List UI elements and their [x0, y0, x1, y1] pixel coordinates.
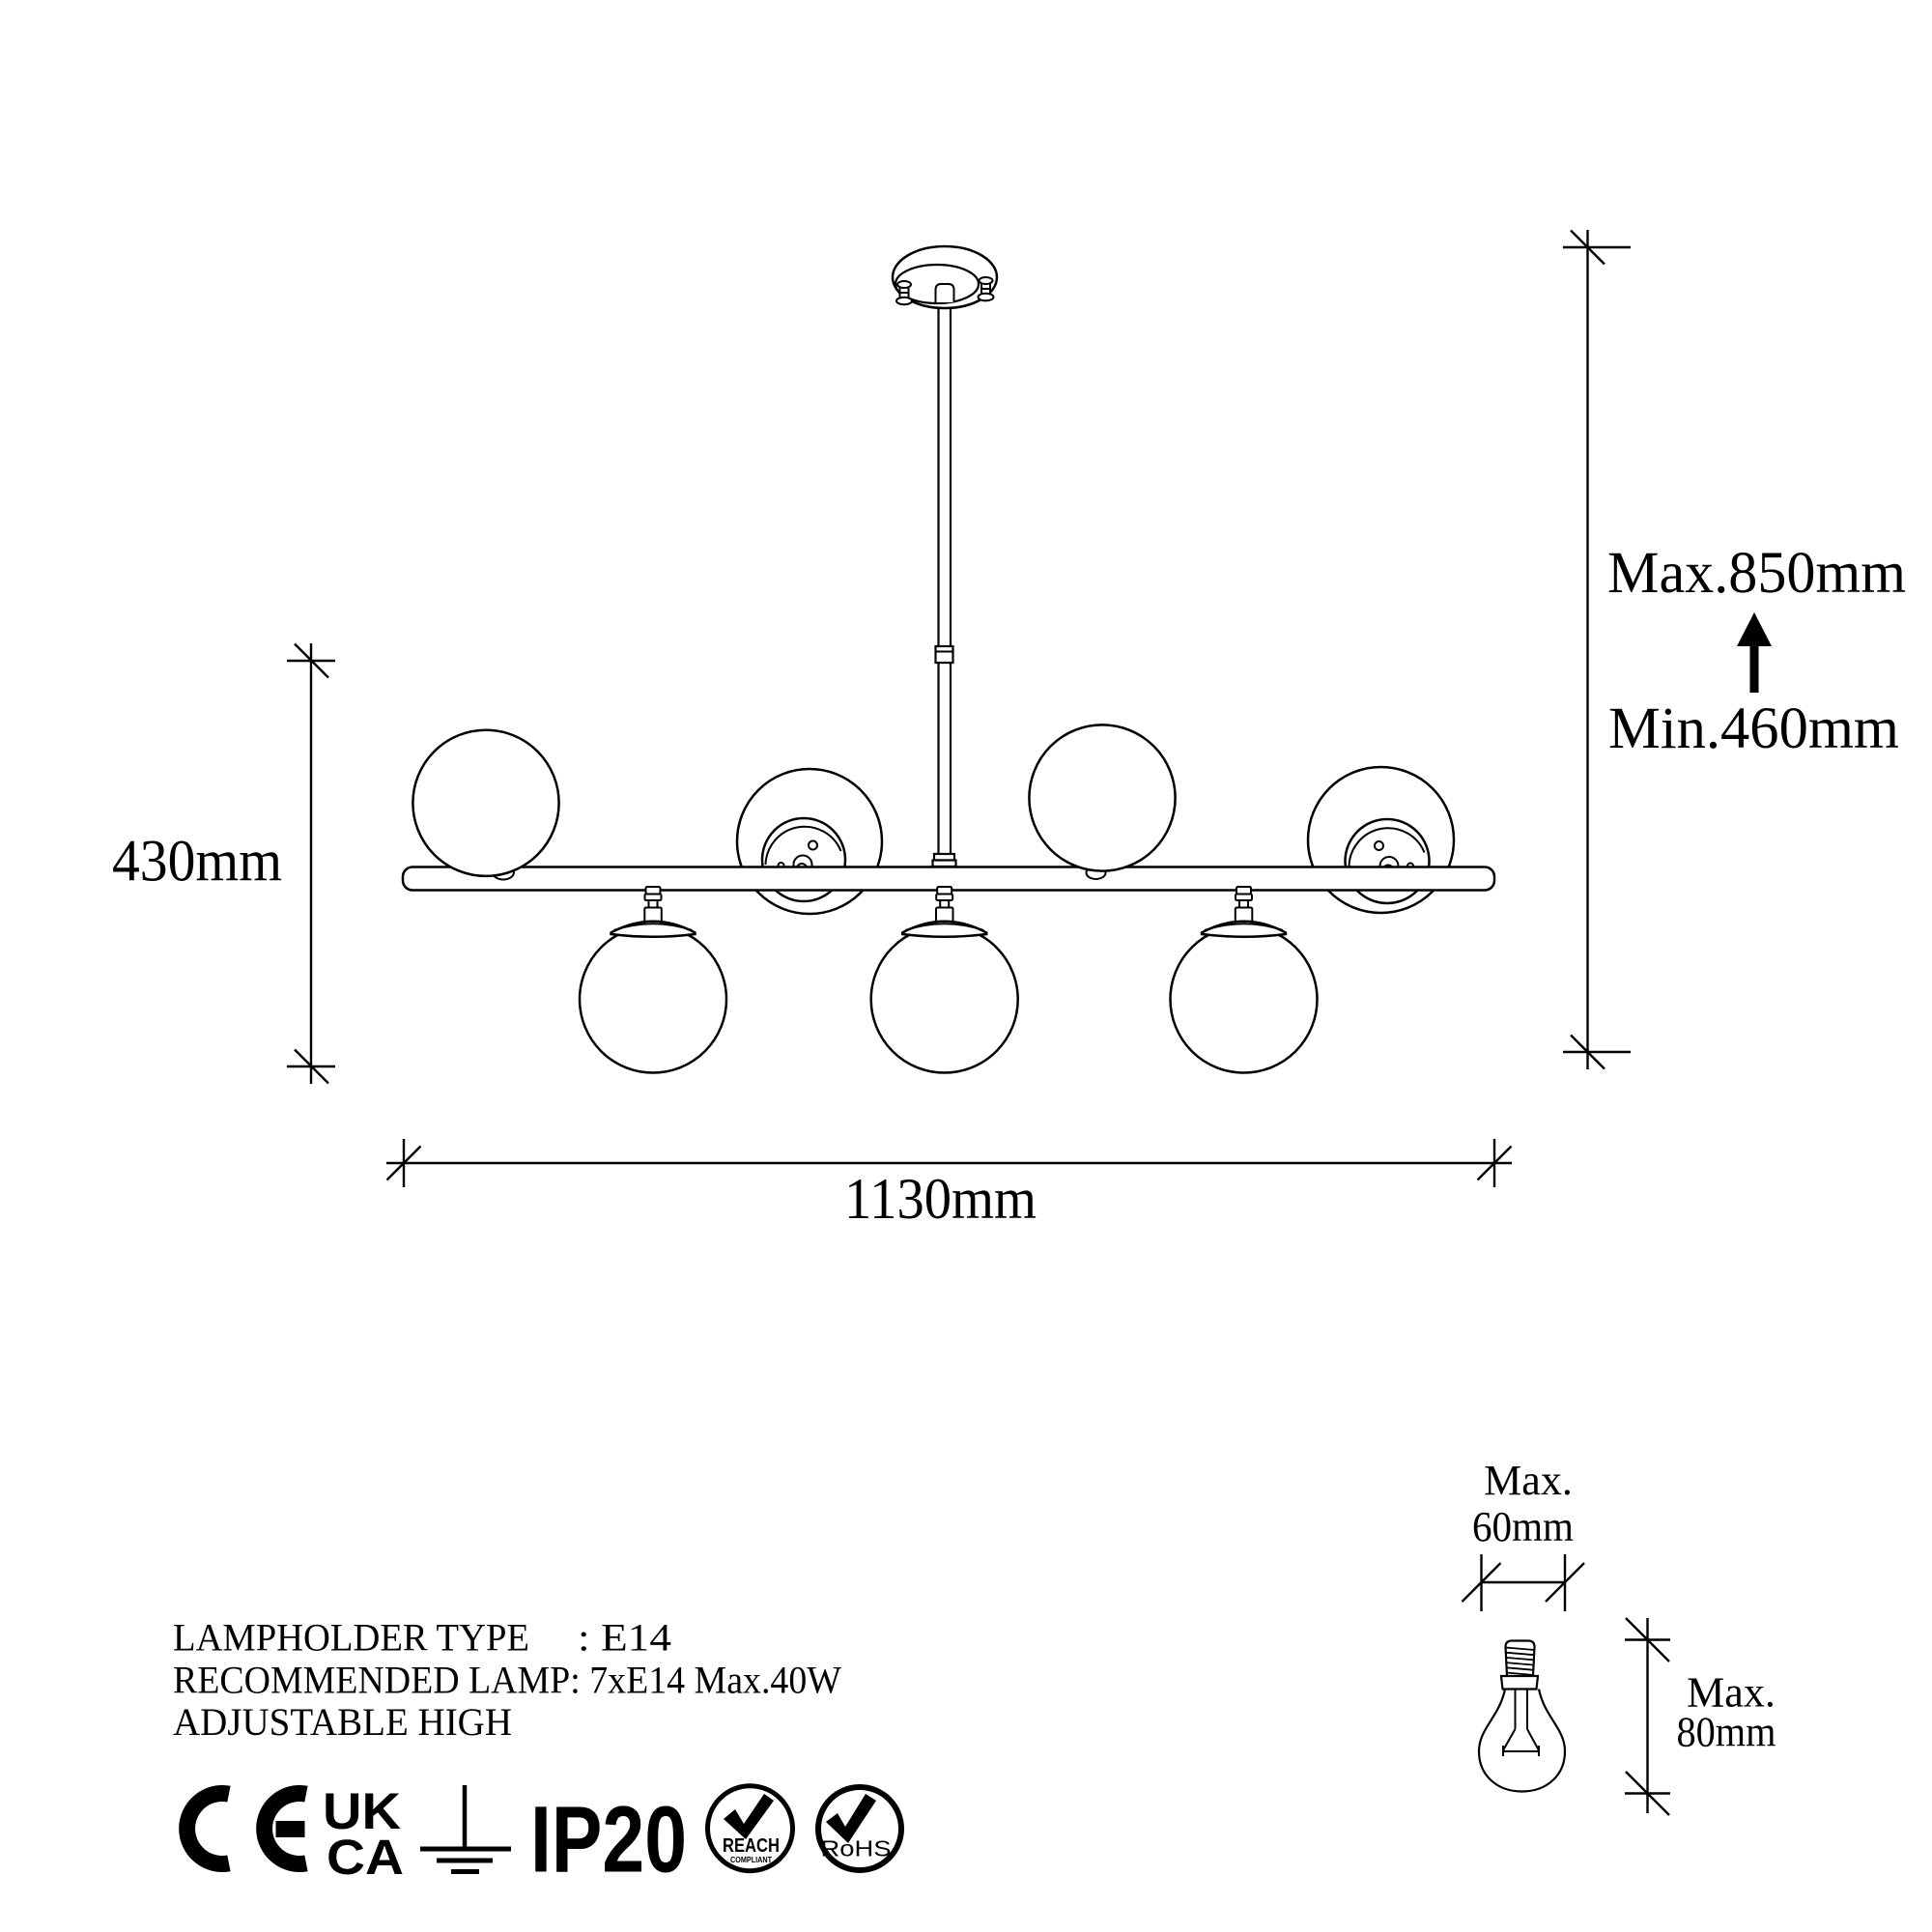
svg-text:: E14: : E14 — [578, 1616, 671, 1660]
svg-text:CA: CA — [327, 1830, 404, 1885]
svg-text:RoHS: RoHS — [821, 1836, 892, 1861]
svg-text:ADJUSTABLE HIGH: ADJUSTABLE HIGH — [173, 1700, 512, 1744]
svg-text:LAMPHOLDER TYPE: LAMPHOLDER TYPE — [173, 1616, 529, 1660]
svg-text:1130mm: 1130mm — [844, 1167, 1037, 1231]
svg-text:REACH: REACH — [723, 1835, 780, 1857]
svg-text:IP20: IP20 — [530, 1787, 687, 1892]
svg-text:Max.: Max. — [1484, 1457, 1573, 1504]
svg-text:Min.460mm: Min.460mm — [1608, 696, 1899, 761]
svg-text:430mm: 430mm — [112, 829, 282, 895]
svg-text:Max.850mm: Max.850mm — [1607, 540, 1906, 606]
svg-text:80mm: 80mm — [1677, 1709, 1776, 1756]
svg-text:RECOMMENDED LAMP: 7xE14 Max.40: RECOMMENDED LAMP: 7xE14 Max.40W — [173, 1659, 841, 1702]
svg-text:60mm: 60mm — [1472, 1503, 1574, 1550]
svg-text:COMPLIANT: COMPLIANT — [730, 1855, 773, 1864]
